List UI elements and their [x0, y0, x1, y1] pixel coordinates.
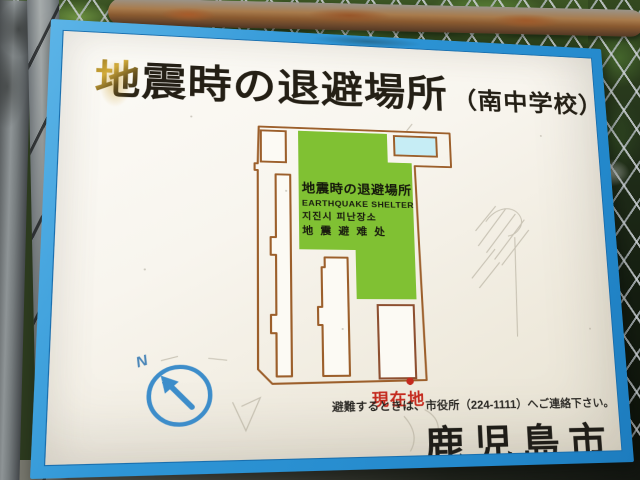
sign-face: 地震時の退避場所（南中学校） 地震時の退避場所 EARTHQUAKE SHELT…	[44, 30, 623, 466]
evacuation-sign-board: 地震時の退避場所（南中学校） 地震時の退避場所 EARTHQUAKE SHELT…	[30, 19, 634, 479]
city-name: 鹿児島市	[424, 410, 617, 466]
photo-stage: 地震時の退避場所（南中学校） 地震時の退避場所 EARTHQUAKE SHELT…	[0, 0, 640, 480]
metal-pole	[0, 0, 32, 480]
